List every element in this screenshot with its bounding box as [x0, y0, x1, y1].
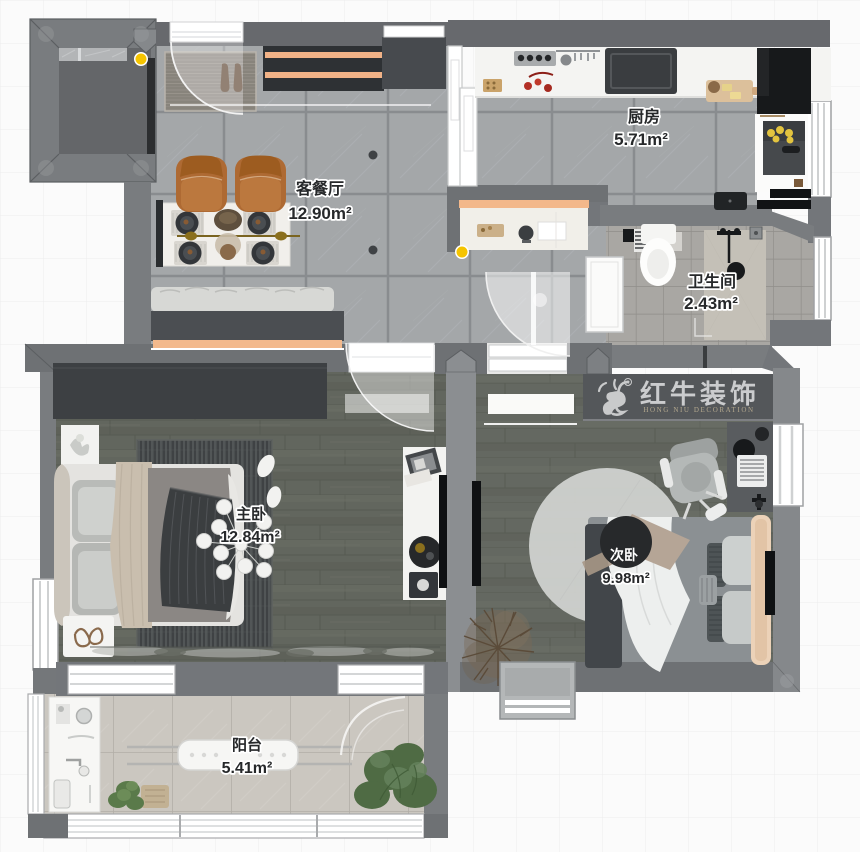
svg-text:12.84m²: 12.84m² — [220, 529, 280, 546]
svg-text:5.41m²: 5.41m² — [222, 760, 273, 777]
svg-text:9.98m²: 9.98m² — [602, 570, 650, 587]
svg-text:卫生间: 卫生间 — [688, 272, 736, 291]
svg-text:次卧: 次卧 — [610, 547, 638, 563]
svg-text:HONG NIU DECORATION: HONG NIU DECORATION — [643, 406, 754, 414]
svg-text:红牛装饰: 红牛装饰 — [640, 379, 760, 409]
svg-text:客餐厅: 客餐厅 — [296, 179, 344, 198]
svg-text:厨房: 厨房 — [628, 107, 660, 126]
svg-text:12.90m²: 12.90m² — [288, 204, 352, 223]
svg-text:5.71m²: 5.71m² — [614, 130, 668, 149]
svg-text:2.43m²: 2.43m² — [684, 294, 738, 313]
svg-text:阳台: 阳台 — [232, 736, 262, 754]
svg-text:R: R — [626, 381, 630, 387]
svg-text:主卧: 主卧 — [236, 505, 266, 523]
